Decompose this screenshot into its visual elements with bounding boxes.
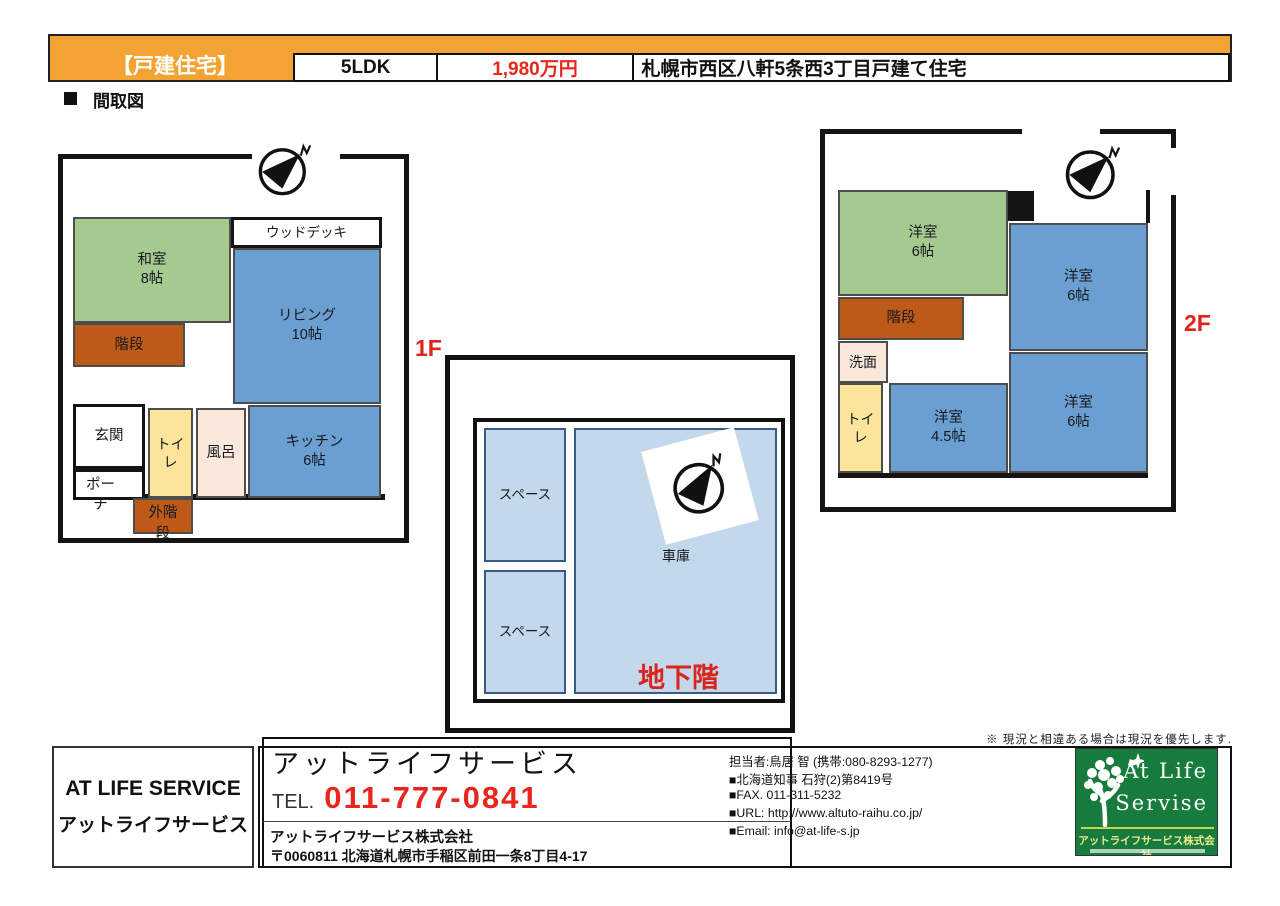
wall [58,154,252,159]
price-cell: 1,980万円 [436,55,633,80]
room-space-2: スペース [484,570,566,694]
contact-manager: 担当者:鳥居 智 (携帯:080-8293-1277) [729,752,933,770]
room-stairs-1f: 階段 [73,323,185,367]
wall [1146,190,1150,223]
contact-fax: ■FAX. 011-311-5232 [729,788,841,802]
floor-label-2f: 2F [1184,310,1211,337]
room-western-bottom-right: 洋室 6帖 [1009,352,1148,473]
logo-divider [1081,827,1214,829]
compass-icon [257,143,311,197]
room-garage-label: 車庫 [636,546,716,566]
room-living: リビング 10帖 [233,248,381,404]
room-genkan: 玄関 [73,404,145,469]
room-washitsu: 和室 8帖 [73,217,231,323]
wall [58,154,63,543]
contact-license: ■北海道知事 石狩(2)第8419号 [729,770,893,788]
wall [58,538,409,543]
floor-label-basement: 地下階 [596,656,761,695]
room-western-small: 洋室 4.5帖 [889,383,1008,473]
wall [820,507,1176,512]
room-bath: 風呂 [196,408,246,498]
wall [1171,129,1176,148]
property-type-label: 【戸建住宅】 [60,50,290,80]
room-western-green: 洋室 6帖 [838,190,1008,296]
logo-tagline [1090,849,1205,853]
company-legal-name: アットライフサービス株式会社 [270,826,473,847]
room-kitchen: キッチン 6帖 [248,405,381,498]
disclaimer-note: ※ 現況と相違ある場合は現況を優先します. [890,731,1232,747]
room-senmen: 洗面 [838,341,888,383]
compass-icon [664,450,735,521]
section-label: 間取図 [93,87,144,112]
company-logo: At Life Servise アットライフサービス株式会社 [1075,748,1218,856]
wall [1171,195,1176,512]
wall [820,129,1022,134]
header-info-row: 5LDK 1,980万円 札幌市西区八軒5条西3丁目戸建て住宅 [293,53,1230,82]
contact-url: ■URL: http://www.altuto-raihu.co.jp/ [729,806,922,820]
company-name-jp: アットライフサービス [58,810,248,837]
flyer-page: 【戸建住宅】 5LDK 1,980万円 札幌市西区八軒5条西3丁目戸建て住宅 間… [0,0,1280,906]
contact-email: ■Email: info@at-life-s.jp [729,824,860,838]
company-name-box: AT LIFE SERVICE アットライフサービス [52,746,254,868]
room-toilet-2f: トイレ [838,383,883,473]
tel-number: 011-777-0841 [324,780,539,815]
layout-cell: 5LDK [295,55,436,80]
room-outer-stairs: 外階 段 [133,498,193,534]
wall [404,154,409,543]
compass-icon [1064,145,1120,201]
room-toilet-1f: トイレ [148,408,193,498]
tel-divider [263,821,791,822]
logo-name-line1: At Life [1123,759,1208,783]
tel-label: TEL. [272,791,314,813]
section-bullet-icon [64,92,77,105]
company-name-en: AT LIFE SERVICE [65,777,240,801]
wall [1100,129,1176,134]
floor-label-1f: 1F [415,335,442,362]
room-stairs-2f: 階段 [838,297,964,340]
room-western-top-right: 洋室 6帖 [1009,223,1148,351]
wall [838,473,1148,478]
wall-block [1008,191,1034,221]
company-address: 〒0060811 北海道札幌市手稲区前田一条8丁目4-17 [270,846,587,866]
title-cell: 札幌市西区八軒5条西3丁目戸建て住宅 [634,55,1228,80]
tel-box-company: アットライフサービス [272,742,582,781]
wall [820,129,825,512]
tel-row: TEL.011-777-0841 [272,780,540,816]
logo-name-line2: Servise [1115,791,1208,815]
room-wood-deck: ウッドデッキ [231,217,382,248]
room-space-1: スペース [484,428,566,562]
wall [340,154,409,159]
room-porch: ポー チ [73,469,145,500]
